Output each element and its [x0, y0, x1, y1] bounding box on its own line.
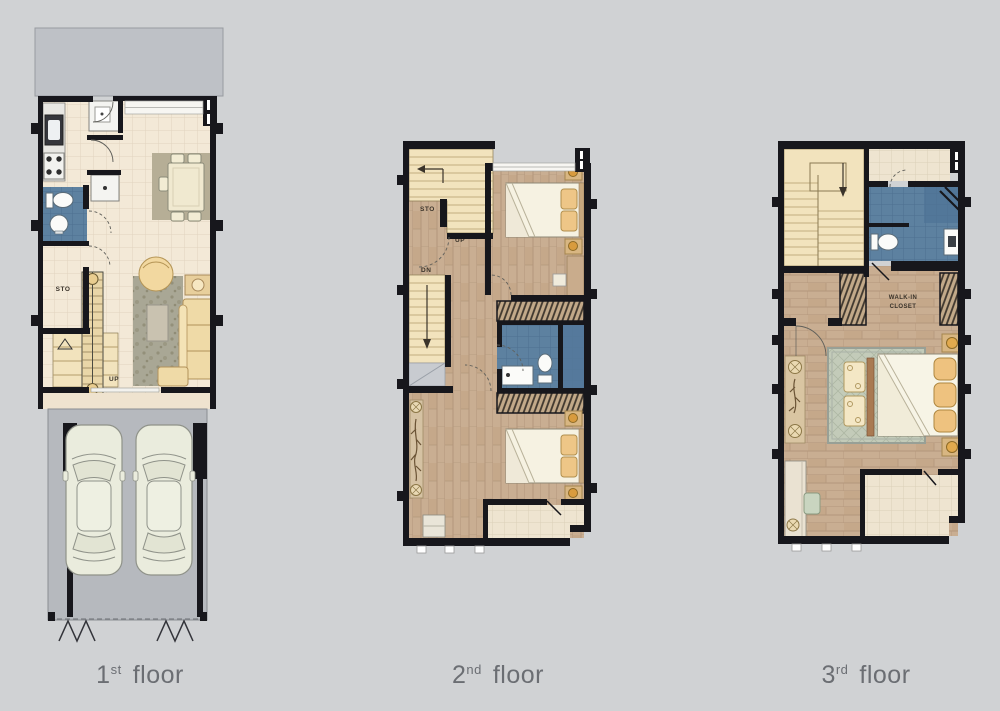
closet-label-line2: CLOSET	[890, 304, 917, 310]
wardrobe	[840, 273, 866, 325]
bench	[867, 358, 874, 436]
lamp	[569, 242, 578, 251]
car	[63, 425, 125, 575]
balcony	[488, 505, 584, 538]
floor-3-label: 3rdfloor	[766, 661, 966, 690]
floor-word: floor	[493, 661, 544, 689]
window	[207, 100, 210, 110]
floor-plan-3: WALK-IN CLOSET	[772, 139, 972, 552]
wardrobe	[497, 393, 584, 413]
dining-area	[152, 153, 210, 221]
staircase	[784, 149, 864, 266]
window	[445, 546, 454, 553]
floor-1-label: 1stfloor	[40, 661, 240, 690]
up-label: UP	[109, 376, 119, 383]
window	[580, 161, 583, 169]
floor-plan-2: STO UP DN	[397, 139, 601, 557]
car	[133, 425, 195, 575]
toilet	[538, 354, 552, 372]
backyard	[35, 28, 223, 96]
floor-word: floor	[133, 661, 184, 689]
bathroom	[497, 325, 584, 388]
pillow	[561, 211, 577, 231]
window	[955, 162, 958, 170]
pillow	[934, 358, 956, 380]
floor-number: 1	[96, 661, 110, 689]
pillow	[561, 435, 577, 455]
floor-2-label: 2ndfloor	[398, 661, 598, 690]
stove	[44, 153, 64, 179]
floor-number: 2	[452, 661, 466, 689]
sofa	[183, 299, 213, 379]
console-planter	[410, 400, 423, 498]
bathroom	[869, 187, 965, 261]
window	[955, 152, 958, 160]
staircase-down	[409, 275, 445, 386]
gate-mark	[59, 621, 95, 641]
toilet	[46, 193, 53, 208]
window	[207, 114, 210, 124]
floor-plans-image: STO UP	[0, 0, 1000, 711]
pillow	[934, 410, 956, 432]
bench-cushion	[844, 362, 865, 392]
pillow	[934, 383, 956, 407]
bench-cushion	[844, 396, 865, 426]
coffee-table	[147, 305, 168, 341]
garage	[43, 393, 210, 641]
window	[580, 151, 583, 159]
lamp	[569, 414, 578, 423]
desk-chair	[804, 493, 820, 514]
balcony	[865, 475, 958, 536]
sink	[50, 215, 68, 233]
living-room	[133, 257, 213, 386]
window	[822, 544, 831, 551]
down-label: DN	[421, 267, 431, 274]
pillow	[561, 189, 577, 209]
porch	[43, 393, 210, 409]
pillow	[561, 457, 577, 477]
floor-word: floor	[859, 661, 910, 689]
wardrobe	[497, 301, 584, 321]
utility-area	[869, 149, 950, 181]
storage-label: STO	[56, 286, 71, 293]
gate-mark	[157, 621, 193, 641]
floor-ordinal: rd	[836, 662, 849, 677]
lamp	[947, 338, 958, 349]
chair	[188, 154, 201, 163]
dresser	[567, 256, 584, 300]
toilet	[871, 234, 878, 250]
window	[417, 546, 426, 553]
closet-label-line1: WALK-IN	[889, 295, 917, 301]
window	[792, 544, 801, 551]
chair	[159, 177, 168, 191]
floor-ordinal: nd	[466, 662, 481, 677]
wardrobe	[940, 273, 958, 325]
stool	[553, 274, 566, 286]
lamp	[569, 489, 578, 498]
chair	[188, 212, 201, 221]
floor-ordinal: st	[111, 662, 122, 677]
floor-plan-1: STO UP	[29, 27, 231, 651]
shower	[563, 325, 584, 388]
window	[852, 544, 861, 551]
headboard	[579, 183, 584, 237]
lamp	[947, 442, 958, 453]
window	[475, 546, 484, 553]
chair	[171, 212, 184, 221]
headboard	[579, 429, 584, 483]
chair	[171, 154, 184, 163]
sliding-door	[91, 388, 159, 392]
floor-number: 3	[821, 661, 835, 689]
ottoman	[158, 367, 188, 386]
bathroom	[43, 187, 87, 241]
storage-label: STO	[420, 206, 435, 213]
